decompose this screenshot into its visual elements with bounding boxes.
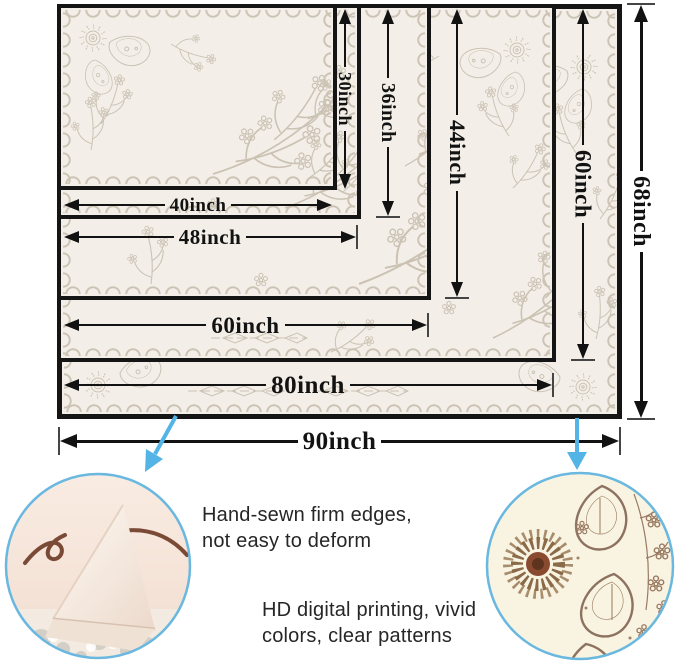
arrowhead-up-icon: [451, 9, 463, 24]
end-tick: [627, 418, 655, 420]
width-arrow-40inch: 40inch: [64, 191, 332, 219]
print-note-line1: HD digital printing, vivid: [262, 597, 476, 623]
end-tick: [571, 359, 595, 361]
callout-arrow-left-icon: [132, 414, 188, 478]
end-tick: [619, 427, 621, 455]
width-label-40inch: 40inch: [170, 196, 227, 215]
height-label-68inch: 68inch: [629, 176, 653, 247]
height-label-36inch: 36inch: [378, 83, 398, 143]
pattern-detail-photo: [482, 468, 678, 664]
product-size-infographic: 40inch 48inch 60inch 80inch 90inch: [0, 0, 679, 665]
arrowhead-right-icon: [602, 434, 619, 448]
width-label-48inch: 48inch: [179, 227, 242, 248]
arrowhead-left-icon: [64, 231, 79, 243]
height-label-44inch: 44inch: [446, 120, 468, 185]
width-arrow-80inch: 80inch: [64, 371, 554, 399]
end-tick: [552, 373, 554, 397]
height-arrow-30inch: 30inch: [331, 9, 359, 189]
arrowhead-left-icon: [64, 319, 79, 331]
edge-note: Hand-sewn firm edges, not easy to deform: [202, 502, 412, 554]
width-arrow-60inch: 60inch: [64, 311, 429, 339]
edge-note-line1: Hand-sewn firm edges,: [202, 502, 412, 528]
arrowhead-right-icon: [412, 319, 427, 331]
height-arrow-60inch: 60inch: [569, 9, 597, 361]
edge-note-line2: not easy to deform: [202, 528, 412, 554]
arrowhead-down-icon: [339, 174, 351, 189]
height-label-60inch: 60inch: [572, 150, 595, 218]
arrowhead-left-icon: [64, 379, 79, 391]
end-tick: [356, 225, 358, 249]
height-arrow-44inch: 44inch: [443, 9, 471, 299]
print-note: HD digital printing, vivid colors, clear…: [262, 597, 476, 649]
cloth-pattern-40x30: [61, 8, 333, 186]
width-arrow-48inch: 48inch: [64, 223, 358, 251]
callout-arrow-right-icon: [561, 418, 595, 474]
end-tick: [445, 297, 469, 299]
width-label-60inch: 60inch: [211, 314, 279, 337]
arrowhead-right-icon: [537, 379, 552, 391]
arrowhead-up-icon: [339, 9, 351, 24]
arrowhead-down-icon: [382, 201, 394, 216]
width-label-80inch: 80inch: [271, 373, 345, 398]
height-arrow-68inch: 68inch: [627, 3, 655, 420]
arrowhead-down-icon: [451, 282, 463, 297]
arrowhead-right-icon: [317, 199, 332, 211]
cloth-rect-40x30: [57, 4, 337, 190]
print-note-line2: colors, clear patterns: [262, 623, 476, 649]
arrowhead-right-icon: [341, 231, 356, 243]
height-arrow-36inch: 36inch: [374, 9, 402, 218]
arrowhead-down-icon: [634, 401, 648, 418]
arrowhead-up-icon: [577, 9, 589, 24]
arrowhead-left-icon: [64, 199, 79, 211]
fabric-edge-photo: [3, 471, 193, 661]
height-label-30inch: 30inch: [336, 72, 354, 126]
end-tick: [376, 216, 400, 218]
arrowhead-down-icon: [577, 344, 589, 359]
arrowhead-up-icon: [382, 9, 394, 24]
arrowhead-up-icon: [634, 5, 648, 22]
width-label-90inch: 90inch: [303, 429, 377, 454]
arrowhead-left-icon: [60, 434, 77, 448]
end-tick: [427, 313, 429, 337]
